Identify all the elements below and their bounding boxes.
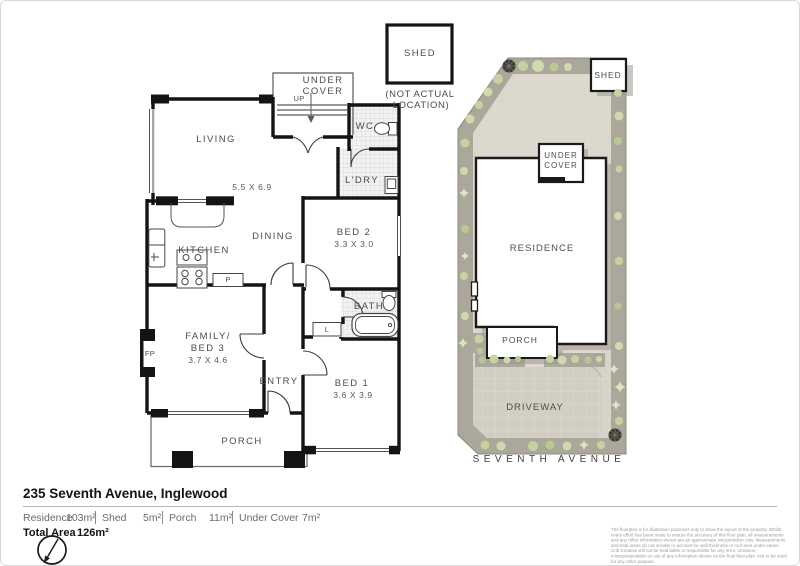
area-divider — [95, 511, 96, 524]
shed-note-1: (NOT ACTUAL — [385, 89, 454, 100]
stove-icon — [177, 267, 207, 288]
fridge-icon — [149, 229, 165, 267]
ldry-label: L'DRY — [345, 175, 379, 186]
bed2-dims: 3.3 X 3.0 — [334, 239, 373, 249]
floorplan-page: LIVING 5.5 X 6.9 UNDER COVER UP WC L'DRY… — [0, 0, 800, 566]
residence-notch — [472, 282, 478, 296]
bed1-dims: 3.6 X 3.9 — [333, 390, 372, 400]
family-dims: 3.7 X 4.6 — [188, 355, 227, 365]
area-divider — [232, 511, 233, 524]
bed1-label: BED 1 — [335, 378, 369, 389]
area-divider — [162, 511, 163, 524]
divider-rule — [23, 506, 777, 507]
entry-label: ENTRY — [259, 376, 298, 387]
total-area-value: 126m² — [77, 527, 109, 539]
under-cover-label-2: COVER — [303, 86, 344, 97]
area-value: 5m² — [143, 512, 161, 524]
tree-icon — [609, 429, 622, 442]
tree-icon — [503, 60, 516, 73]
area-value: 103m² — [66, 512, 96, 524]
site-plan — [458, 58, 633, 454]
street-label: SEVENTH AVENUE — [473, 454, 626, 465]
residence-notch — [472, 300, 478, 311]
bathtub-icon — [352, 314, 398, 337]
site-under-cover-1: UNDER — [544, 151, 577, 160]
site-under-cover-bar — [539, 177, 565, 183]
shed-label: SHED — [404, 48, 436, 59]
wc-label: WC — [356, 121, 375, 132]
area-label: Porch — [169, 512, 196, 524]
toilet-icon-wc — [375, 123, 398, 136]
porch-label: PORCH — [221, 436, 262, 447]
living-label: LIVING — [196, 134, 236, 145]
total-area-label: Total Area — [23, 527, 76, 539]
up-arrow-icon — [308, 93, 315, 123]
kitchen-label: KITCHEN — [178, 245, 230, 256]
disclaimer-text: The floorplan is for illustration purpos… — [611, 527, 787, 564]
floorplan-graphic — [1, 1, 799, 565]
shed-note-2: LOCATION) — [393, 100, 449, 111]
dining-label: DINING — [252, 231, 294, 242]
bath-label: BATH — [354, 301, 384, 312]
trough-icon — [385, 177, 398, 194]
compass-icon — [38, 536, 66, 564]
address-title: 235 Seventh Avenue, Inglewood — [23, 486, 228, 501]
driveway-label: DRIVEWAY — [506, 402, 564, 413]
area-label: Under Cover — [239, 512, 299, 524]
under-cover-label-1: UNDER — [303, 75, 344, 86]
pantry-label: P — [225, 275, 230, 284]
kitchen-bench — [171, 203, 224, 227]
site-under-cover-2: COVER — [544, 161, 577, 170]
family-label-1: FAMILY/ — [185, 331, 231, 342]
linen-label: L — [325, 325, 329, 334]
bed2-label: BED 2 — [337, 227, 371, 238]
up-label: UP — [293, 94, 304, 103]
family-label-2: BED 3 — [191, 343, 225, 354]
living-dims: 5.5 X 6.9 — [232, 182, 271, 192]
area-value: 7m² — [302, 512, 320, 524]
fireplace-label: FP — [145, 349, 155, 358]
residence-label: RESIDENCE — [510, 243, 574, 254]
disclaimer: The floorplan is for illustration purpos… — [611, 527, 787, 566]
area-label: Shed — [102, 512, 127, 524]
site-shed-label: SHED — [594, 70, 622, 80]
site-porch-label: PORCH — [502, 335, 538, 345]
area-value: 11m² — [209, 512, 232, 524]
